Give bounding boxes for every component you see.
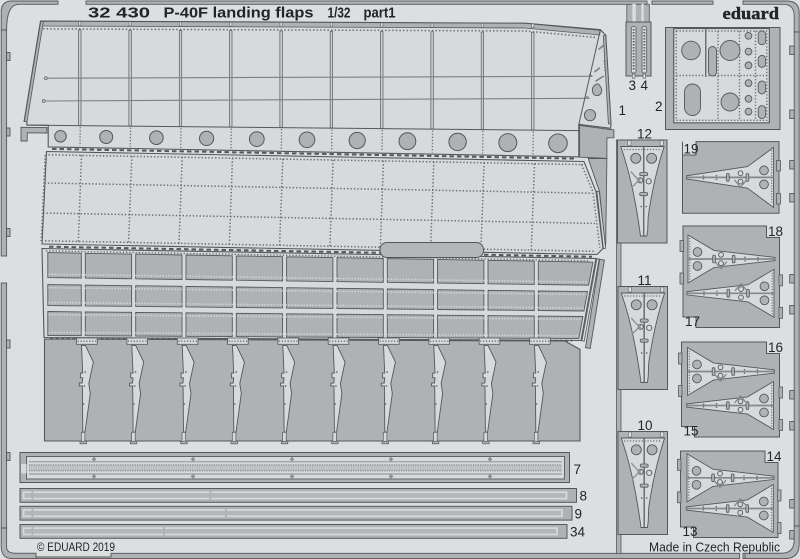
svg-text:P-40F landing flaps: P-40F landing flaps	[164, 5, 314, 22]
svg-text:7: 7	[574, 462, 582, 477]
svg-text:15: 15	[684, 424, 699, 439]
svg-text:4: 4	[641, 78, 649, 93]
svg-text:2: 2	[655, 99, 663, 114]
svg-text:34: 34	[570, 525, 586, 540]
svg-text:eduard: eduard	[723, 4, 780, 23]
svg-text:14: 14	[767, 449, 783, 464]
svg-text:18: 18	[768, 224, 783, 239]
svg-text:17: 17	[685, 314, 700, 329]
svg-text:19: 19	[684, 142, 699, 157]
svg-text:16: 16	[768, 340, 783, 355]
svg-text:© EDUARD 2019: © EDUARD 2019	[37, 542, 115, 554]
svg-text:12: 12	[637, 127, 652, 142]
svg-text:11: 11	[638, 273, 652, 288]
svg-text:1: 1	[619, 103, 627, 118]
svg-text:8: 8	[580, 489, 588, 504]
svg-text:Made in Czech Republic: Made in Czech Republic	[649, 540, 780, 554]
svg-text:1/32: 1/32	[328, 5, 351, 22]
svg-text:13: 13	[683, 524, 698, 539]
svg-text:part1: part1	[364, 5, 396, 22]
svg-text:3: 3	[629, 78, 637, 93]
svg-text:32 430: 32 430	[88, 5, 150, 22]
svg-text:10: 10	[638, 418, 653, 433]
svg-text:9: 9	[575, 507, 583, 522]
